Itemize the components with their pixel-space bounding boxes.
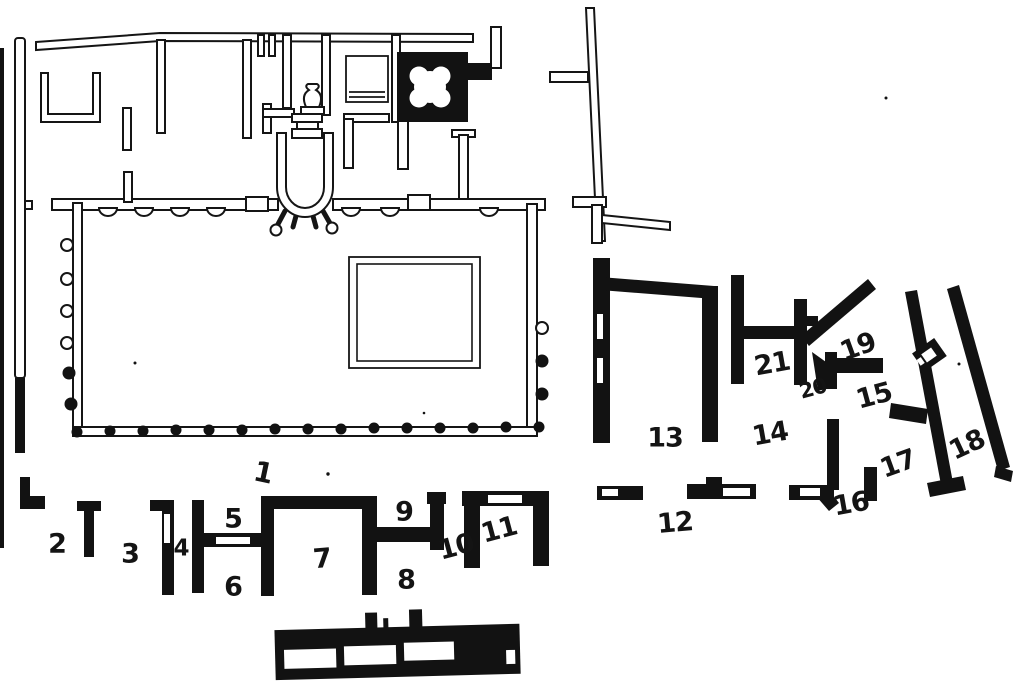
room-label-6: 6 <box>224 574 242 601</box>
room-label-4: 4 <box>173 538 188 561</box>
photocopy-edge-line <box>0 48 4 548</box>
excavated-black-walls <box>15 52 1013 680</box>
room-label-12: 12 <box>656 508 694 538</box>
room-label-13: 13 <box>647 425 683 452</box>
room-label-2: 2 <box>48 531 66 558</box>
quatrefoil-pool <box>410 67 451 108</box>
room-label-21: 21 <box>752 348 792 381</box>
room-label-14: 14 <box>750 418 790 451</box>
site-plan-figure: 1 2 3 4 5 6 7 8 9 10 11 12 13 14 15 16 1… <box>0 0 1024 684</box>
room-label-5: 5 <box>224 506 242 533</box>
print-specks <box>134 97 961 476</box>
south-portico-foundation <box>274 607 521 680</box>
apse-exedra <box>271 133 338 236</box>
colonnade-columns <box>61 239 549 438</box>
room-label-16: 16 <box>831 488 871 521</box>
temple-podium <box>349 257 480 368</box>
room-label-9: 9 <box>395 499 413 526</box>
room-label-7: 7 <box>312 545 332 573</box>
room-label-3: 3 <box>121 541 139 568</box>
street-walls-northeast <box>550 8 670 243</box>
room-label-8: 8 <box>397 567 415 594</box>
